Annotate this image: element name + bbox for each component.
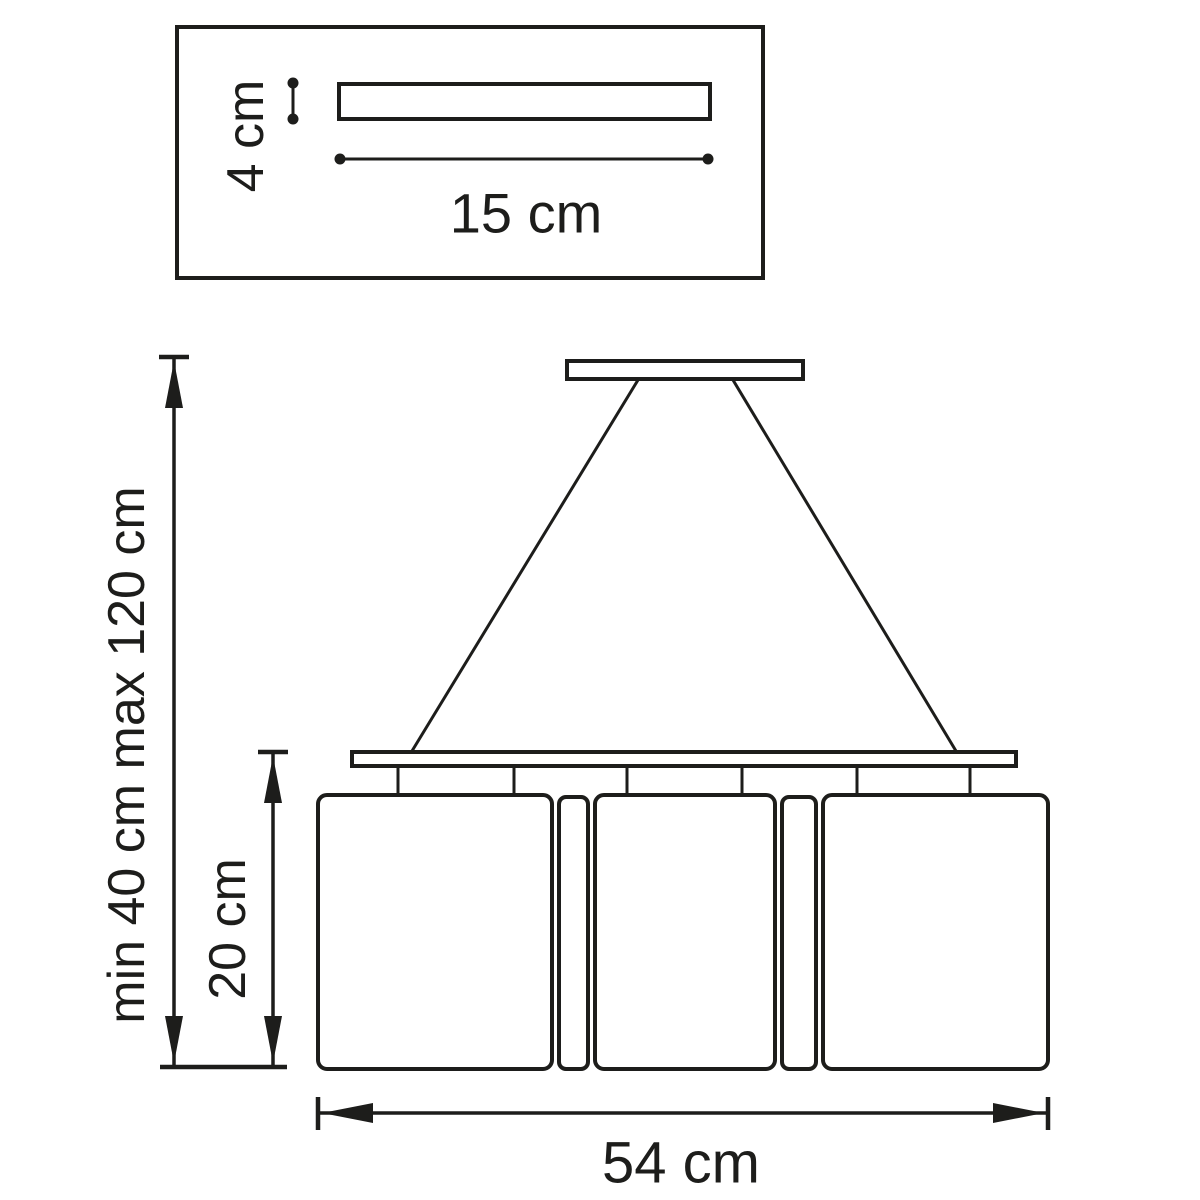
canopy-width-dimension-line bbox=[335, 154, 714, 165]
shade-height-label: 20 cm bbox=[198, 858, 258, 1000]
canopy-height-dimension-line bbox=[288, 78, 299, 125]
suspension-cable-left bbox=[412, 380, 638, 751]
suspension-height-label: min 40 cm max 120 cm bbox=[97, 486, 157, 1024]
canopy-height-label: 4 cm bbox=[216, 80, 276, 193]
pendant-lamp-dimension-diagram: 4 cm 15 cm min 40 cm max 120 cm 20 cm 54… bbox=[0, 0, 1200, 1200]
suspension-height-dimension-line bbox=[159, 357, 189, 1067]
lamp-holder-stubs bbox=[398, 764, 970, 796]
canopy-width-label: 15 cm bbox=[450, 181, 603, 246]
fixture-width-dimension-line bbox=[318, 1097, 1048, 1130]
suspension-cable-right bbox=[733, 380, 956, 751]
shade-height-dimension-line bbox=[258, 752, 288, 1067]
fixture-width-label: 54 cm bbox=[602, 1130, 760, 1197]
